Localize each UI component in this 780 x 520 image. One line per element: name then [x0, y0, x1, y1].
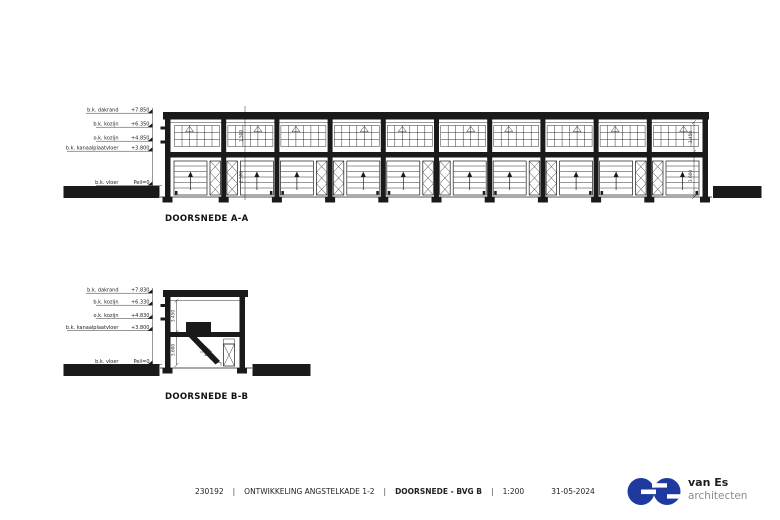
storey-lower-dim: 3.600 — [688, 170, 694, 183]
drawing-date: 31-05-2024 — [551, 487, 595, 496]
level-label: b.k. kozijn — [93, 122, 118, 128]
separator: | — [233, 487, 236, 496]
storey-lower-dim: 3.600 — [171, 344, 177, 357]
drawing-sheet: 1.500 2.500 3.450 3.600 b.k. dakrand +7.… — [0, 0, 780, 520]
logo-company-name: van Es architecten — [688, 477, 747, 502]
level-annotations-a: b.k. dakrand +7.850 b.k. kozijn +6.350 o… — [66, 108, 162, 191]
level-label: b.k. kozijn — [93, 300, 118, 306]
door-head — [224, 339, 235, 344]
level-value: Peil=0 — [133, 180, 149, 186]
level-label: b.k. dakrand — [87, 108, 118, 114]
drawing-title: DOORSNEDE - BVG B — [395, 487, 482, 496]
pavement-slab-right — [253, 364, 311, 376]
right-wall — [240, 297, 246, 368]
storey-upper-dim: 3.450 — [171, 310, 177, 323]
section-a-a-drawing: 1.500 2.500 3.450 3.600 — [64, 106, 762, 203]
level-annotations-b: b.k. dakrand +7.830 b.k. kozijn +6.330 o… — [66, 288, 162, 371]
level-label: b.k. dakrand — [87, 288, 118, 294]
pavement-slab-right — [713, 186, 762, 198]
level-value: Peil=0 — [133, 359, 149, 365]
level-value: +7.850 — [131, 108, 150, 114]
logo-line-1: van Es — [688, 477, 747, 490]
level-label: o.k. kozijn — [94, 313, 119, 319]
level-value: +6.330 — [131, 300, 150, 306]
section-a-title: DOORSNEDE A-A — [165, 214, 249, 224]
stair-bulkhead — [186, 322, 211, 332]
level-label: b.k. kanaalplaatvloer — [66, 325, 120, 331]
right-wall — [703, 120, 709, 198]
section-b-title: DOORSNEDE B-B — [165, 392, 248, 402]
level-label: o.k. kozijn — [94, 136, 119, 142]
van-es-logo-icon — [628, 478, 683, 505]
drawing-canvas: 1.500 2.500 3.450 3.600 b.k. dakrand +7.… — [0, 0, 780, 520]
level-value: +4.850 — [131, 136, 150, 142]
pavement-slab-left — [64, 364, 160, 376]
separator: | — [491, 487, 494, 496]
level-label: b.k. vloer — [95, 180, 119, 186]
level-value: +3.800 — [131, 146, 150, 152]
door-height-dim: 2.500 — [239, 171, 245, 184]
left-wall — [165, 297, 171, 368]
floor-slab — [171, 332, 240, 337]
logo-line-2: architecten — [688, 490, 747, 502]
project-number: 230192 — [195, 487, 224, 496]
level-value: +6.350 — [131, 122, 150, 128]
storey-upper-dim: 3.450 — [688, 131, 694, 144]
project-name: ONTWIKKELING ANGSTELKADE 1-2 — [244, 487, 374, 496]
pavement-slab-left — [64, 186, 160, 198]
title-block: 230192 | ONTWIKKELING ANGSTELKADE 1-2 | … — [195, 487, 595, 496]
level-value: +3.800 — [131, 325, 150, 331]
drawing-scale: 1:200 — [503, 487, 525, 496]
level-value: +7.830 — [131, 288, 150, 294]
separator: | — [384, 487, 387, 496]
left-wall — [165, 120, 171, 198]
level-label: b.k. vloer — [95, 359, 119, 365]
window-height-dim: 1.500 — [239, 130, 245, 143]
level-value: +4.830 — [131, 313, 150, 319]
roof-slab — [163, 290, 248, 297]
level-label: b.k. kanaalplaatvloer — [66, 146, 120, 152]
